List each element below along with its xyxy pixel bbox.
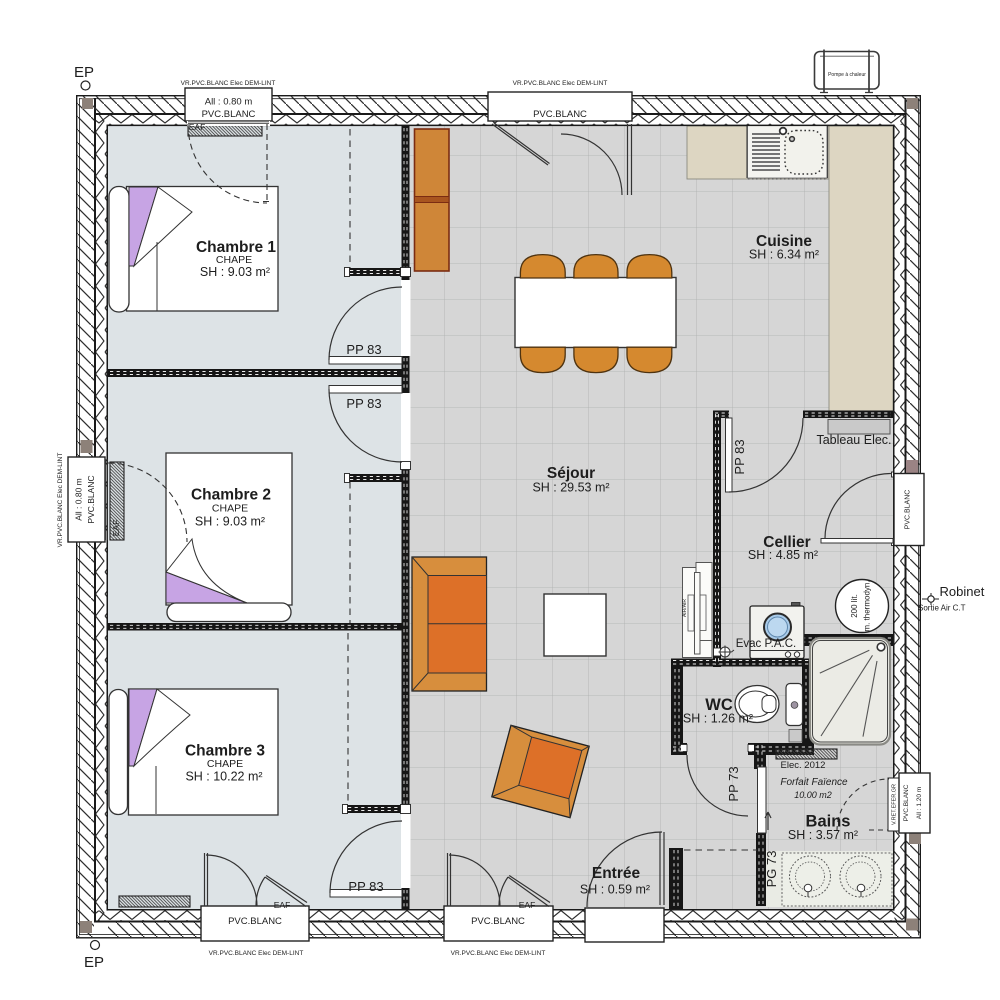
svg-text:VR.PVC.BLANC Elec DEM-LINT: VR.PVC.BLANC Elec DEM-LINT (181, 80, 276, 87)
svg-text:EAF: EAF (274, 900, 291, 910)
svg-text:Chambre 2: Chambre 2 (191, 487, 271, 504)
svg-text:PVC.BLANC: PVC.BLANC (228, 916, 282, 927)
svg-text:SH : 9.03 m²: SH : 9.03 m² (195, 515, 265, 529)
svg-text:PVC.BLANC: PVC.BLANC (533, 109, 587, 120)
svg-text:SH : 3.57 m²: SH : 3.57 m² (788, 828, 858, 842)
svg-text:SH : 1.26 m²: SH : 1.26 m² (683, 712, 753, 726)
svg-text:VR.PVC.BLANC Elec DEM-LINT: VR.PVC.BLANC Elec DEM-LINT (209, 950, 304, 957)
svg-text:SH : 4.85 m²: SH : 4.85 m² (748, 548, 818, 562)
svg-text:PP 83: PP 83 (346, 342, 381, 357)
svg-text:SH : 6.34 m²: SH : 6.34 m² (749, 248, 819, 262)
svg-text:V.RET.EFER.GR: V.RET.EFER.GR (892, 784, 898, 825)
svg-text:Chambre 3: Chambre 3 (185, 743, 265, 760)
svg-text:PVC.BLANC: PVC.BLANC (905, 490, 912, 530)
svg-text:Forfait Faïence: Forfait Faïence (780, 777, 848, 788)
svg-text:VR.PVC.BLANC Elec DEM-LINT: VR.PVC.BLANC Elec DEM-LINT (513, 80, 608, 87)
svg-text:AIR/AIR: AIR/AIR (682, 599, 688, 617)
svg-text:m. thermodyn.: m. thermodyn. (863, 580, 872, 631)
svg-text:PVC.BLANC: PVC.BLANC (903, 784, 910, 821)
svg-text:SH : 9.03 m²: SH : 9.03 m² (200, 265, 270, 279)
svg-text:PVC.BLANC: PVC.BLANC (86, 475, 96, 523)
svg-text:All : 1.20 m: All : 1.20 m (916, 787, 923, 820)
svg-text:Robinet: Robinet (940, 584, 985, 599)
svg-text:VR.PVC.BLANC Elec DEM-LINT: VR.PVC.BLANC Elec DEM-LINT (57, 453, 64, 548)
svg-text:EP: EP (74, 64, 94, 81)
svg-text:PVC.BLANC: PVC.BLANC (471, 916, 525, 927)
svg-text:Sortie Air C.T: Sortie Air C.T (918, 604, 966, 613)
svg-text:Séjour: Séjour (547, 465, 595, 482)
svg-text:CHAPE: CHAPE (207, 758, 243, 770)
svg-text:Pompe à chaleur: Pompe à chaleur (828, 72, 866, 78)
svg-text:SH : 0.59 m²: SH : 0.59 m² (580, 883, 650, 897)
svg-text:EAF: EAF (111, 520, 121, 537)
svg-text:PP 83: PP 83 (346, 396, 381, 411)
svg-text:EAF: EAF (519, 900, 536, 910)
svg-text:PVC.BLANC: PVC.BLANC (202, 109, 256, 120)
svg-text:SH : 29.53 m²: SH : 29.53 m² (532, 481, 609, 495)
svg-text:PG 73: PG 73 (764, 851, 779, 888)
svg-text:Evac P.A.C.: Evac P.A.C. (736, 638, 797, 650)
svg-text:10.00 m2: 10.00 m2 (794, 790, 832, 800)
svg-text:Elec. 2012: Elec. 2012 (781, 760, 826, 771)
svg-text:VR.PVC.BLANC Elec DEM-LINT: VR.PVC.BLANC Elec DEM-LINT (451, 950, 546, 957)
svg-text:Entrée: Entrée (592, 865, 641, 882)
svg-text:EAF: EAF (189, 122, 206, 132)
svg-text:All : 0.80 m: All : 0.80 m (205, 97, 253, 108)
svg-text:All : 0.80 m: All : 0.80 m (74, 478, 84, 521)
svg-text:SH : 10.22 m²: SH : 10.22 m² (185, 770, 262, 784)
svg-text:EP: EP (84, 954, 104, 971)
svg-text:PP 83: PP 83 (348, 879, 383, 894)
svg-text:PP 73: PP 73 (726, 766, 741, 801)
svg-text:CHAPE: CHAPE (212, 503, 248, 515)
svg-text:PP 83: PP 83 (732, 439, 747, 474)
svg-text:200 lit.: 200 lit. (850, 594, 859, 618)
svg-text:Tableau Elec.: Tableau Elec. (816, 433, 891, 447)
